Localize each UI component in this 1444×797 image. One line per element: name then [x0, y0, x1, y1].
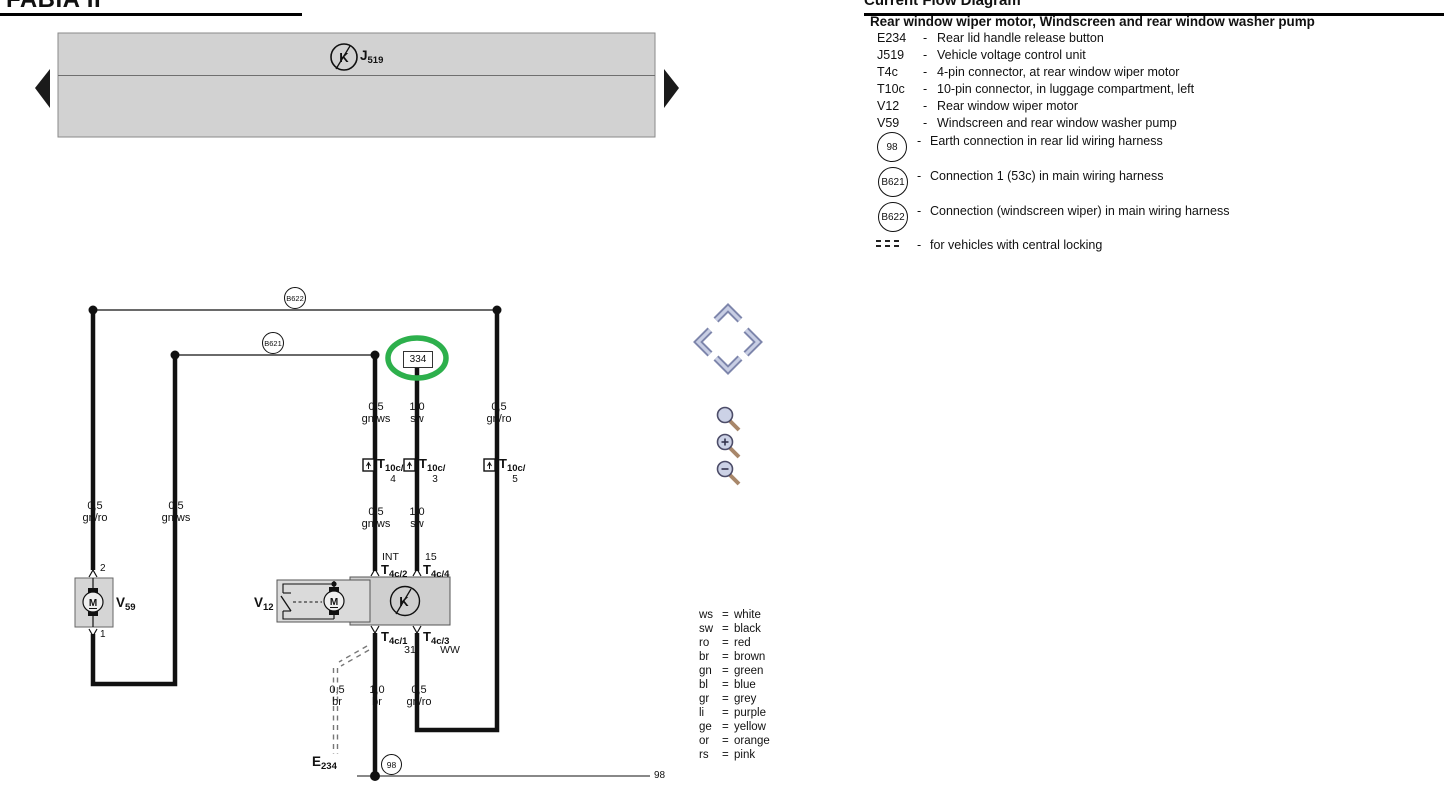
v12-motor-letter: M [330, 597, 338, 608]
page-title-left: FABIA II [6, 0, 101, 14]
color-name: orange [734, 735, 770, 747]
wire-label: 1,0br [369, 684, 384, 708]
equals: = [722, 651, 734, 663]
voltage-supply-bus: K [58, 33, 655, 137]
legend-desc: Earth connection in rear lid wiring harn… [930, 134, 1163, 148]
v59-pin-bottom: 1 [100, 629, 106, 640]
wiring-diagram-canvas: K M [0, 0, 1444, 797]
color-abbr: bl [699, 679, 722, 691]
equals: = [722, 679, 734, 691]
junction-dots [89, 306, 502, 782]
legend-b621-circle: B621 [878, 167, 908, 197]
wire-label: 0,5br [329, 684, 344, 708]
color-code-row: sw=black [699, 623, 761, 635]
legend-desc: Connection 1 (53c) in main wiring harnes… [930, 169, 1163, 183]
legend-dash: - [923, 48, 937, 62]
legend-desc: Rear lid handle release button [937, 31, 1104, 45]
color-abbr: ro [699, 637, 722, 649]
color-abbr: gn [699, 665, 722, 677]
pan-controls [698, 308, 758, 370]
color-abbr: ge [699, 721, 722, 733]
b622-connection-circle: B622 [284, 287, 306, 309]
legend-row: V12 - Rear window wiper motor [877, 99, 1078, 113]
color-code-row: br=brown [699, 651, 765, 663]
wire-label: 0,5gn/ws [362, 401, 391, 425]
e234-label: E234 [312, 754, 337, 769]
equals: = [722, 693, 734, 705]
t10c3-label: T10c/ [419, 456, 445, 471]
color-code-row: or=orange [699, 735, 770, 747]
current-flow-diagram-page: K M [0, 0, 1444, 797]
legend-code: V59 [877, 116, 923, 130]
wires [93, 310, 497, 776]
legend-code: V12 [877, 99, 923, 113]
legend-code: J519 [877, 48, 923, 62]
color-code-row: rs=pink [699, 749, 755, 761]
legend-title: Rear window wiper motor, Windscreen and … [870, 14, 1315, 29]
color-name: yellow [734, 721, 766, 733]
color-abbr: gr [699, 693, 722, 705]
t4c4-label: T4c/4 [423, 562, 449, 577]
t4c1-pin: 31 [400, 644, 420, 656]
legend-desc: Connection (windscreen wiper) in main wi… [930, 204, 1229, 218]
wire-label: 0,5gn/ws [162, 500, 191, 524]
legend-row: T10c - 10-pin connector, in luggage comp… [877, 82, 1194, 96]
pan-down-button[interactable] [716, 358, 740, 370]
t10c5-pin: 5 [508, 474, 522, 485]
legend-earth-circle: 98 [877, 132, 907, 162]
legend-dash: - [917, 238, 921, 252]
color-code-row: gr=grey [699, 693, 756, 705]
t10c4-pin: 4 [386, 474, 400, 485]
zoom-controls [718, 408, 740, 485]
legend-desc: 4-pin connector, at rear window wiper mo… [937, 65, 1179, 79]
legend-dash: - [917, 134, 921, 148]
equals: = [722, 665, 734, 677]
wire-label: 1,0sw [409, 401, 424, 425]
legend-row: V59 - Windscreen and rear window washer … [877, 116, 1177, 130]
color-name: red [734, 637, 751, 649]
wire-label: 1,0sw [409, 506, 424, 530]
previous-page-arrow[interactable] [35, 69, 50, 108]
color-code-row: bl=blue [699, 679, 756, 691]
t10c3-pin: 3 [428, 474, 442, 485]
t4c1-label: T4c/1 [381, 629, 407, 644]
color-code-row: ro=red [699, 637, 751, 649]
color-name: grey [734, 693, 756, 705]
b621-connection-circle: B621 [262, 332, 284, 354]
left-header-rule [0, 13, 302, 16]
color-name: green [734, 665, 763, 677]
color-name: blue [734, 679, 756, 691]
color-abbr: or [699, 735, 722, 747]
legend-dash: - [923, 116, 937, 130]
pan-right-button[interactable] [746, 330, 758, 354]
v12-label: V12 [254, 595, 274, 610]
equals: = [722, 735, 734, 747]
legend-code: E234 [877, 31, 923, 45]
earth-line-label: 98 [654, 770, 665, 781]
legend-row: J519 - Vehicle voltage control unit [877, 48, 1086, 62]
equals: = [722, 623, 734, 635]
zoom-out-button[interactable] [718, 462, 740, 485]
zoom-in-button[interactable] [718, 435, 740, 458]
v59-washer-pump-symbol: M [75, 578, 113, 627]
t10c5-label: T10c/ [499, 456, 525, 471]
legend-dash: - [923, 82, 937, 96]
legend-dash: - [923, 65, 937, 79]
legend-desc: 10-pin connector, in luggage compartment… [937, 82, 1194, 96]
wire-label: 0,5gn/ro [406, 684, 431, 708]
color-code-row: gn=green [699, 665, 763, 677]
page-title-right: Current Flow Diagram [864, 0, 1021, 9]
legend-row: E234 - Rear lid handle release button [877, 31, 1104, 45]
color-abbr: sw [699, 623, 722, 635]
t4c3-pin: WW [438, 644, 462, 656]
legend-dash: - [923, 31, 937, 45]
legend-dash: - [917, 169, 921, 183]
earth-98-circle: 98 [381, 754, 402, 775]
equals: = [722, 749, 734, 761]
j519-k-symbol: K [339, 50, 349, 65]
legend-code: T4c [877, 65, 923, 79]
t4c2-label: T4c/2 [381, 562, 407, 577]
t10c4-label: T10c/ [377, 456, 403, 471]
pan-up-button[interactable] [716, 308, 740, 320]
color-abbr: br [699, 651, 722, 663]
v12-wiper-motor-symbol: M K [277, 577, 450, 625]
color-name: brown [734, 651, 765, 663]
legend-b622-circle: B622 [878, 202, 908, 232]
zoom-original-button[interactable] [718, 408, 740, 431]
equals: = [722, 609, 734, 621]
t4c3-label: T4c/3 [423, 629, 449, 644]
next-page-arrow[interactable] [664, 69, 679, 108]
legend-dash: - [923, 99, 937, 113]
v59-pin-top: 2 [100, 563, 106, 574]
color-abbr: rs [699, 749, 722, 761]
color-code-row: ge=yellow [699, 721, 766, 733]
color-abbr: ws [699, 609, 722, 621]
track-number-box: 334 [403, 351, 433, 368]
legend-row: T4c - 4-pin connector, at rear window wi… [877, 65, 1179, 79]
color-abbr: li [699, 707, 722, 719]
wire-label: 0,5gn/ws [362, 506, 391, 530]
wire-label: 0,5gn/ro [486, 401, 511, 425]
color-code-row: ws=white [699, 609, 761, 621]
legend-desc: Rear window wiper motor [937, 99, 1078, 113]
legend-code: T10c [877, 82, 923, 96]
equals: = [722, 721, 734, 733]
equals: = [722, 637, 734, 649]
j519-label: J519 [360, 48, 383, 63]
legend-desc: for vehicles with central locking [930, 238, 1102, 252]
v59-motor-letter: M [89, 598, 97, 609]
equals: = [722, 707, 734, 719]
v59-label: V59 [116, 595, 136, 610]
dashed-wire-symbol [876, 237, 899, 250]
legend-desc: Windscreen and rear window washer pump [937, 116, 1177, 130]
color-name: purple [734, 707, 766, 719]
legend-desc: Vehicle voltage control unit [937, 48, 1086, 62]
color-code-row: li=purple [699, 707, 766, 719]
color-name: pink [734, 749, 755, 761]
color-name: black [734, 623, 761, 635]
wire-label: 0,5gn/ro [82, 500, 107, 524]
color-name: white [734, 609, 761, 621]
pan-left-button[interactable] [698, 330, 710, 354]
legend-dash: - [917, 204, 921, 218]
